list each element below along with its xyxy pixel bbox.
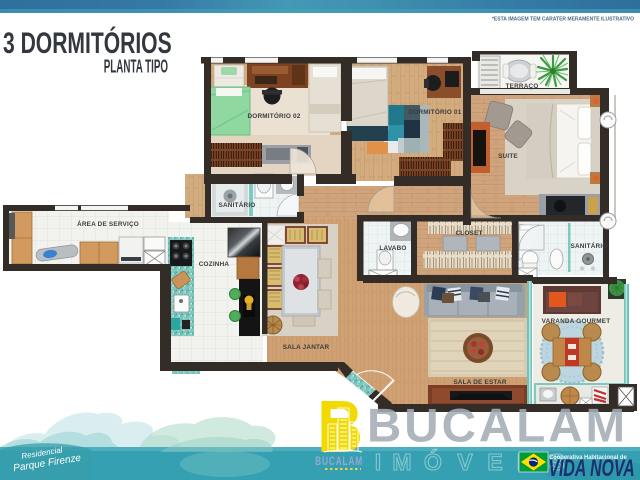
svg-text:M: M <box>392 449 411 475</box>
svg-text:3 DORMITÓRIOS: 3 DORMITÓRIOS <box>3 25 172 60</box>
svg-text:Ó: Ó <box>424 448 442 475</box>
svg-text:V: V <box>457 449 473 475</box>
svg-text:SALA JANTAR: SALA JANTAR <box>283 344 330 351</box>
svg-text:SANITÁRIO: SANITÁRIO <box>219 200 256 209</box>
svg-text:COZINHA: COZINHA <box>199 261 230 268</box>
svg-text:LAVABO: LAVABO <box>379 245 406 252</box>
svg-text:TERRAÇO: TERRAÇO <box>506 83 539 90</box>
svg-text:CLOSET: CLOSET <box>455 230 482 237</box>
svg-text:DORMITÓRIO 02: DORMITÓRIO 02 <box>247 111 300 120</box>
svg-text:VARANDA GOURMET: VARANDA GOURMET <box>542 318 611 325</box>
svg-text:DORMITÓRIO 01: DORMITÓRIO 01 <box>408 107 461 116</box>
svg-text:BUCALAM: BUCALAM <box>367 400 628 453</box>
svg-text:SUITE: SUITE <box>498 153 518 160</box>
svg-text:*ESTA IMAGEM TEM CARATER MERAM: *ESTA IMAGEM TEM CARATER MERAMENTE ILUST… <box>492 17 634 23</box>
svg-text:VIDA NOVA: VIDA NOVA <box>548 456 634 480</box>
svg-text:I: I <box>375 449 381 475</box>
svg-text:PLANTA TIPO: PLANTA TIPO <box>104 58 168 78</box>
svg-text:ÁREA DE SERVIÇO: ÁREA DE SERVIÇO <box>77 219 139 228</box>
svg-text:BUCALAM: BUCALAM <box>315 456 363 469</box>
svg-text:SANITÁRIO: SANITÁRIO <box>571 241 608 250</box>
svg-text:SALA DE ESTAR: SALA DE ESTAR <box>453 379 507 386</box>
svg-text:E: E <box>487 449 502 475</box>
